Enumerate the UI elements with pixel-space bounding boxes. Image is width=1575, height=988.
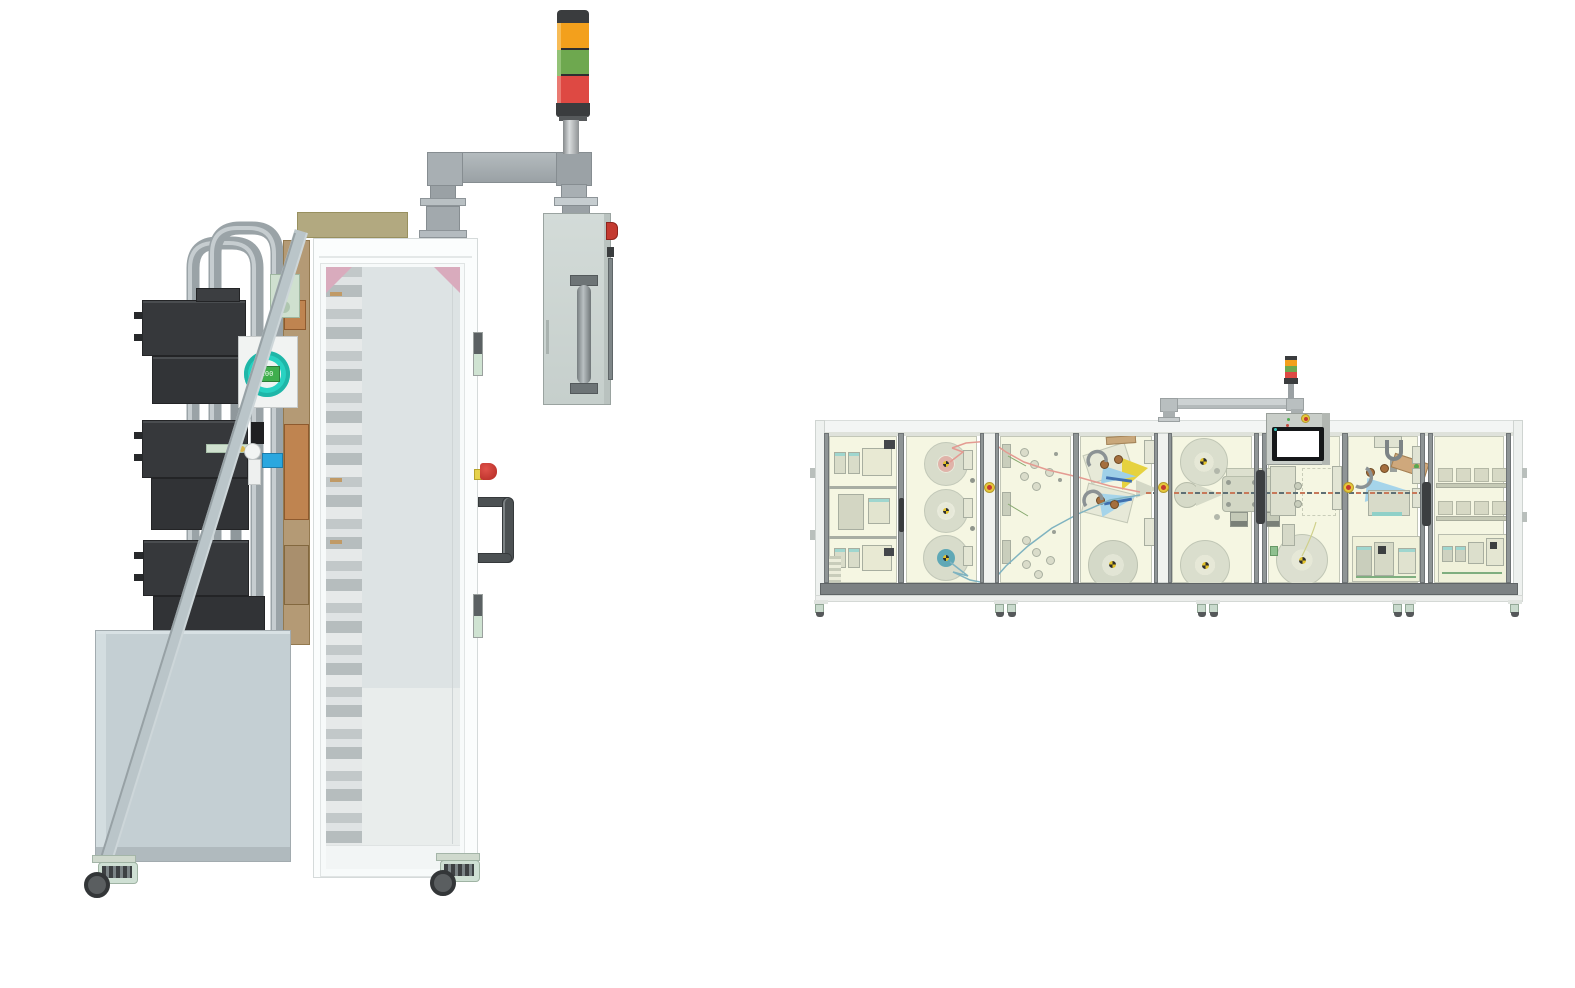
hmi-led-green [1287, 418, 1290, 421]
tower-pole [1288, 384, 1294, 399]
mini-wheel [1394, 612, 1402, 617]
mini-wheel [816, 612, 824, 617]
mullion [1506, 433, 1511, 583]
mini-wheel [1406, 612, 1414, 617]
frame-end-post-right [1513, 420, 1523, 602]
web-threads [0, 0, 1575, 988]
frame-base-rail [815, 595, 1523, 602]
post-estop-red-center [1161, 485, 1166, 490]
mullion [980, 433, 984, 583]
hmi-arm-elbow-left [1160, 398, 1178, 412]
hmi-screen [1277, 431, 1319, 457]
post-estop-button [1343, 482, 1354, 493]
frame-nub [1522, 468, 1527, 478]
hmi-arm-flange [1158, 417, 1180, 422]
hmi-arm-beam [1168, 398, 1298, 409]
mullion [995, 433, 999, 583]
mini-wheel [996, 612, 1004, 617]
frame-bottom-beam [820, 583, 1518, 595]
scene-canvas: 100 [0, 0, 1575, 988]
hmi-camera-dot [1274, 428, 1277, 431]
frame-nub [1522, 512, 1527, 522]
hmi-estop-button [1301, 414, 1310, 423]
hmi-estop-red-center [1304, 417, 1308, 421]
mullion [824, 433, 829, 583]
post-estop-red-center [987, 485, 992, 490]
mullion [1342, 433, 1348, 583]
right-machine-front-view [0, 0, 1575, 988]
frame-nub [810, 530, 815, 540]
mullion [1073, 433, 1079, 583]
mullion [1168, 433, 1172, 583]
mini-wheel [1198, 612, 1206, 617]
post-estop-button [984, 482, 995, 493]
mini-wheel [1008, 612, 1016, 617]
mini-wheel [1511, 612, 1519, 617]
door-handle-vertical [899, 498, 904, 532]
post-estop-red-center [1346, 485, 1351, 490]
door-handle-vertical [1256, 470, 1265, 524]
frame-nub [810, 468, 815, 478]
post-estop-button [1158, 482, 1169, 493]
mullion [1154, 433, 1158, 583]
mini-wheel [1210, 612, 1218, 617]
door-handle-vertical [1422, 482, 1431, 526]
